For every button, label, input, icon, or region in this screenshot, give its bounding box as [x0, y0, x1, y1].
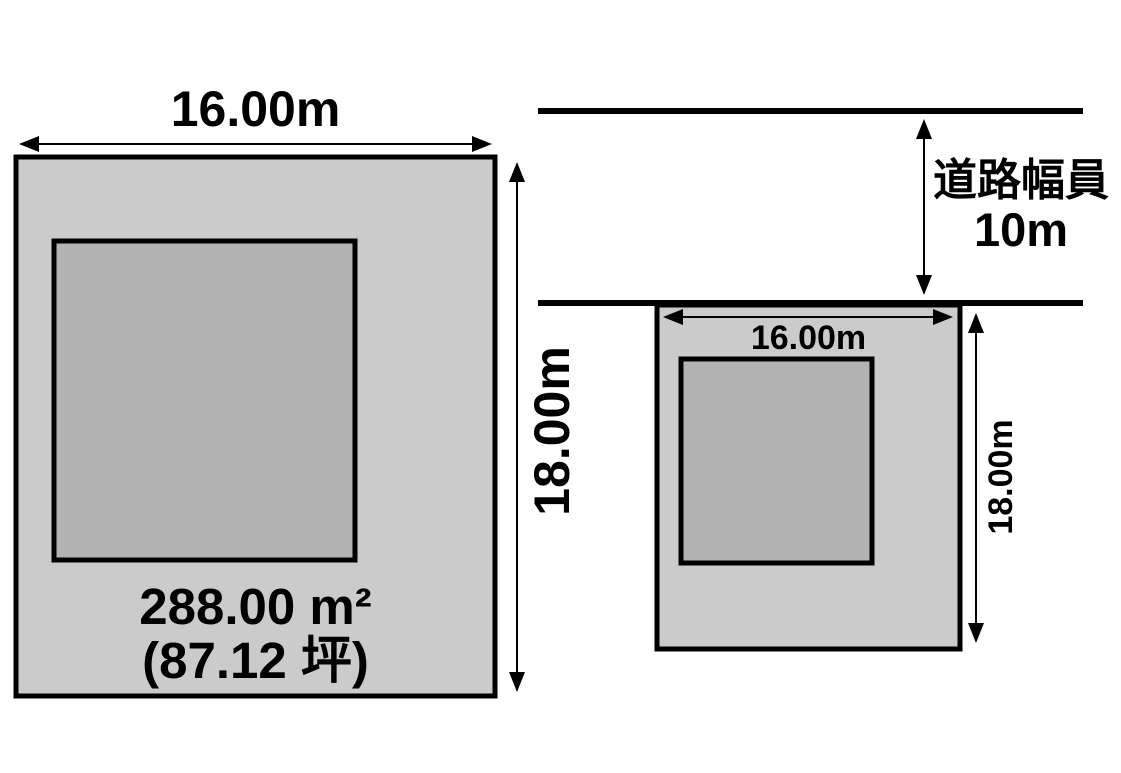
road-width-title-label: 道路幅員 [916, 157, 1121, 205]
right-plot-height-label: 18.00m [984, 419, 1018, 534]
right-plot-width-label: 16.00m [655, 321, 962, 355]
left-plot-area-label: 288.00 m² [14, 580, 497, 634]
left-plot-area-block: 288.00 m² (87.12 坪) [14, 580, 497, 687]
left-plot-width-label: 16.00m [14, 84, 497, 134]
road-width-value-label: 10m [916, 205, 1121, 256]
right-building-rect [681, 359, 872, 563]
left-plot-tsubo-label: (87.12 坪) [14, 634, 497, 688]
land-plot-setback-diagram: 16.00m 18.00m 288.00 m² (87.12 坪) 道路幅員 1… [0, 0, 1121, 773]
road-width-label-block: 道路幅員 10m [916, 157, 1121, 255]
left-building-rect [54, 241, 355, 560]
left-plot-height-label: 18.00m [527, 346, 577, 516]
